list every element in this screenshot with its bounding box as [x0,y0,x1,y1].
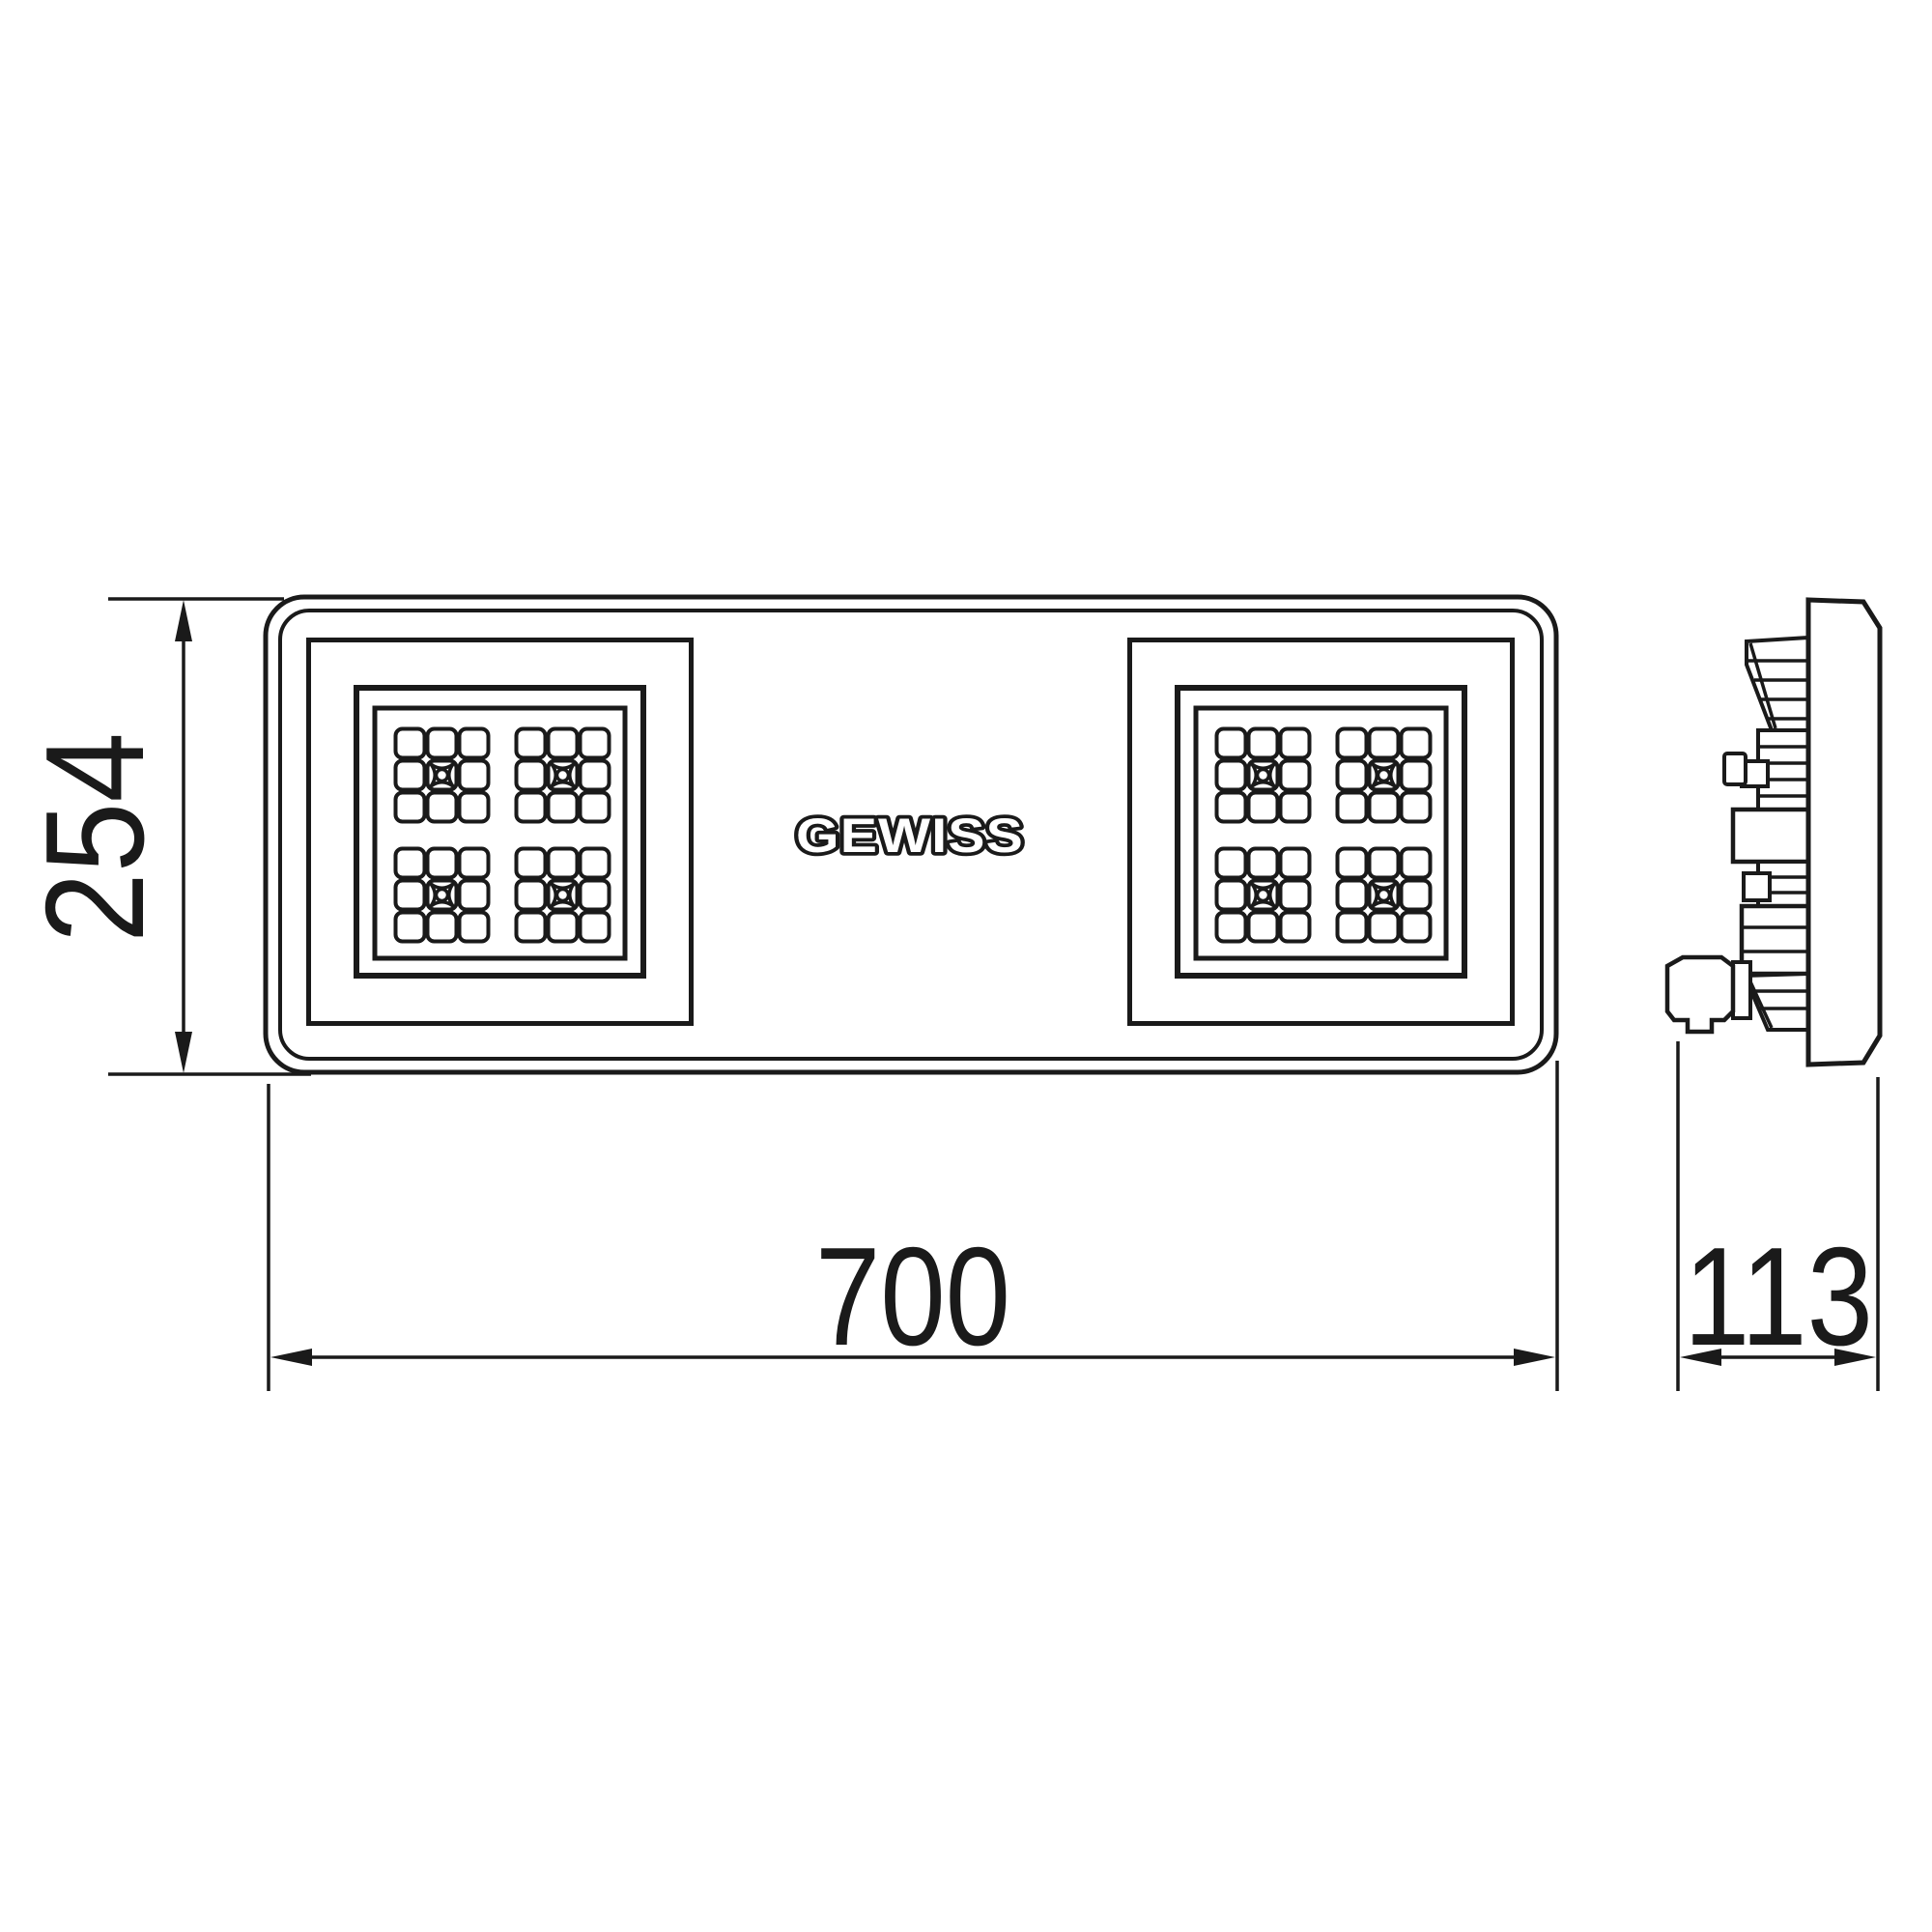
arrowhead-left [270,1349,312,1366]
width-dimension: 700 [269,1061,1557,1391]
cable-gland-neck [1733,962,1750,1018]
depth-dimension: 113 [1678,1041,1878,1391]
bracket-pivot-block [1733,810,1808,862]
arrowhead-right [1514,1349,1555,1366]
heatsink-bottom-fins [1745,974,1808,1030]
heatsink-top-fins [1747,638,1808,730]
arrowhead-up [175,600,192,641]
led-module-right [1130,640,1513,1024]
cable-gland [1667,957,1733,1032]
height-dimension-label: 254 [16,732,173,943]
depth-dimension-label: 113 [1684,1218,1873,1375]
heatsink-step [1744,873,1770,900]
side-view [1667,600,1880,1065]
floodlight-technical-drawing: GEWISS [0,0,1932,1932]
front-view: GEWISS [266,597,1556,1072]
mounting-tab [1724,753,1746,784]
width-dimension-label: 700 [815,1218,1010,1375]
technical-drawing-canvas: GEWISS [0,0,1932,1932]
led-module-left [309,640,692,1024]
gewiss-logo: GEWISS [796,809,1024,863]
side-face-plate [1808,600,1880,1065]
arrowhead-down [175,1032,192,1073]
